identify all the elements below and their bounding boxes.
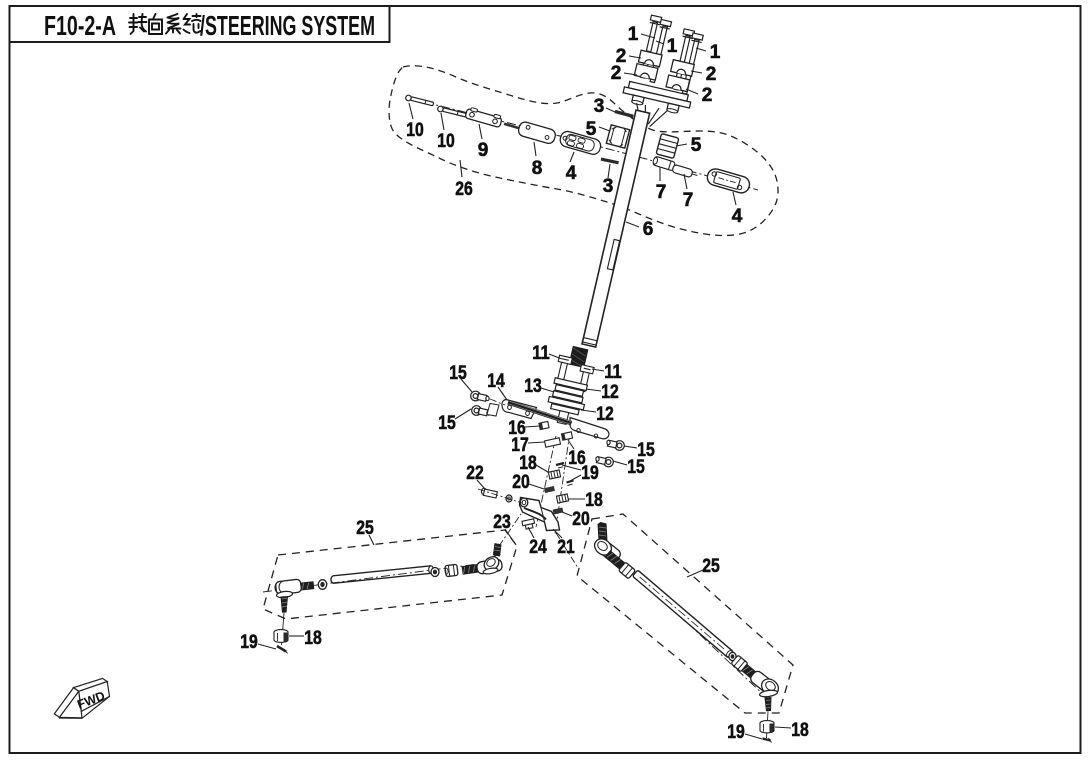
svg-text:9: 9 (478, 140, 489, 161)
svg-text:18: 18 (519, 453, 537, 474)
svg-text:19: 19 (581, 463, 599, 484)
svg-text:11: 11 (604, 362, 622, 383)
svg-text:8: 8 (532, 158, 543, 179)
svg-text:15: 15 (438, 413, 456, 434)
svg-text:5: 5 (586, 119, 597, 140)
svg-text:12: 12 (596, 404, 614, 425)
svg-text:F10-2-A: F10-2-A (44, 10, 116, 41)
svg-text:26: 26 (455, 179, 473, 200)
svg-text:3: 3 (603, 176, 614, 197)
svg-text:19: 19 (240, 632, 258, 653)
svg-text:1: 1 (667, 36, 678, 57)
svg-text:10: 10 (437, 131, 455, 152)
svg-text:18: 18 (791, 720, 809, 741)
svg-text:2: 2 (611, 63, 622, 84)
svg-text:14: 14 (487, 371, 505, 392)
svg-text:4: 4 (566, 163, 577, 184)
svg-text:24: 24 (529, 537, 547, 558)
svg-text:7: 7 (656, 182, 667, 203)
svg-text:18: 18 (585, 490, 603, 511)
svg-text:15: 15 (627, 457, 645, 478)
svg-text:4: 4 (732, 206, 743, 227)
svg-text:10: 10 (406, 120, 424, 141)
svg-text:5: 5 (691, 135, 702, 156)
svg-text:21: 21 (557, 537, 575, 558)
svg-text:3: 3 (594, 96, 605, 117)
svg-text:19: 19 (727, 722, 745, 743)
svg-text:20: 20 (572, 509, 590, 530)
svg-text:2: 2 (706, 64, 717, 85)
svg-text:6: 6 (643, 219, 654, 240)
svg-text:7: 7 (683, 190, 694, 211)
svg-text:12: 12 (601, 382, 619, 403)
svg-text:13: 13 (524, 376, 542, 397)
svg-text:2: 2 (702, 85, 713, 106)
svg-text:18: 18 (304, 628, 322, 649)
svg-text:20: 20 (512, 472, 530, 493)
svg-text:23: 23 (493, 512, 511, 533)
svg-text:25: 25 (702, 556, 720, 577)
svg-text:25: 25 (356, 518, 374, 539)
svg-text:/STEERING SYSTEM: /STEERING SYSTEM (200, 10, 375, 41)
svg-text:1: 1 (628, 24, 639, 45)
svg-text:11: 11 (532, 343, 550, 364)
svg-text:22: 22 (466, 463, 484, 484)
svg-text:15: 15 (449, 363, 467, 384)
svg-text:1: 1 (710, 42, 721, 63)
